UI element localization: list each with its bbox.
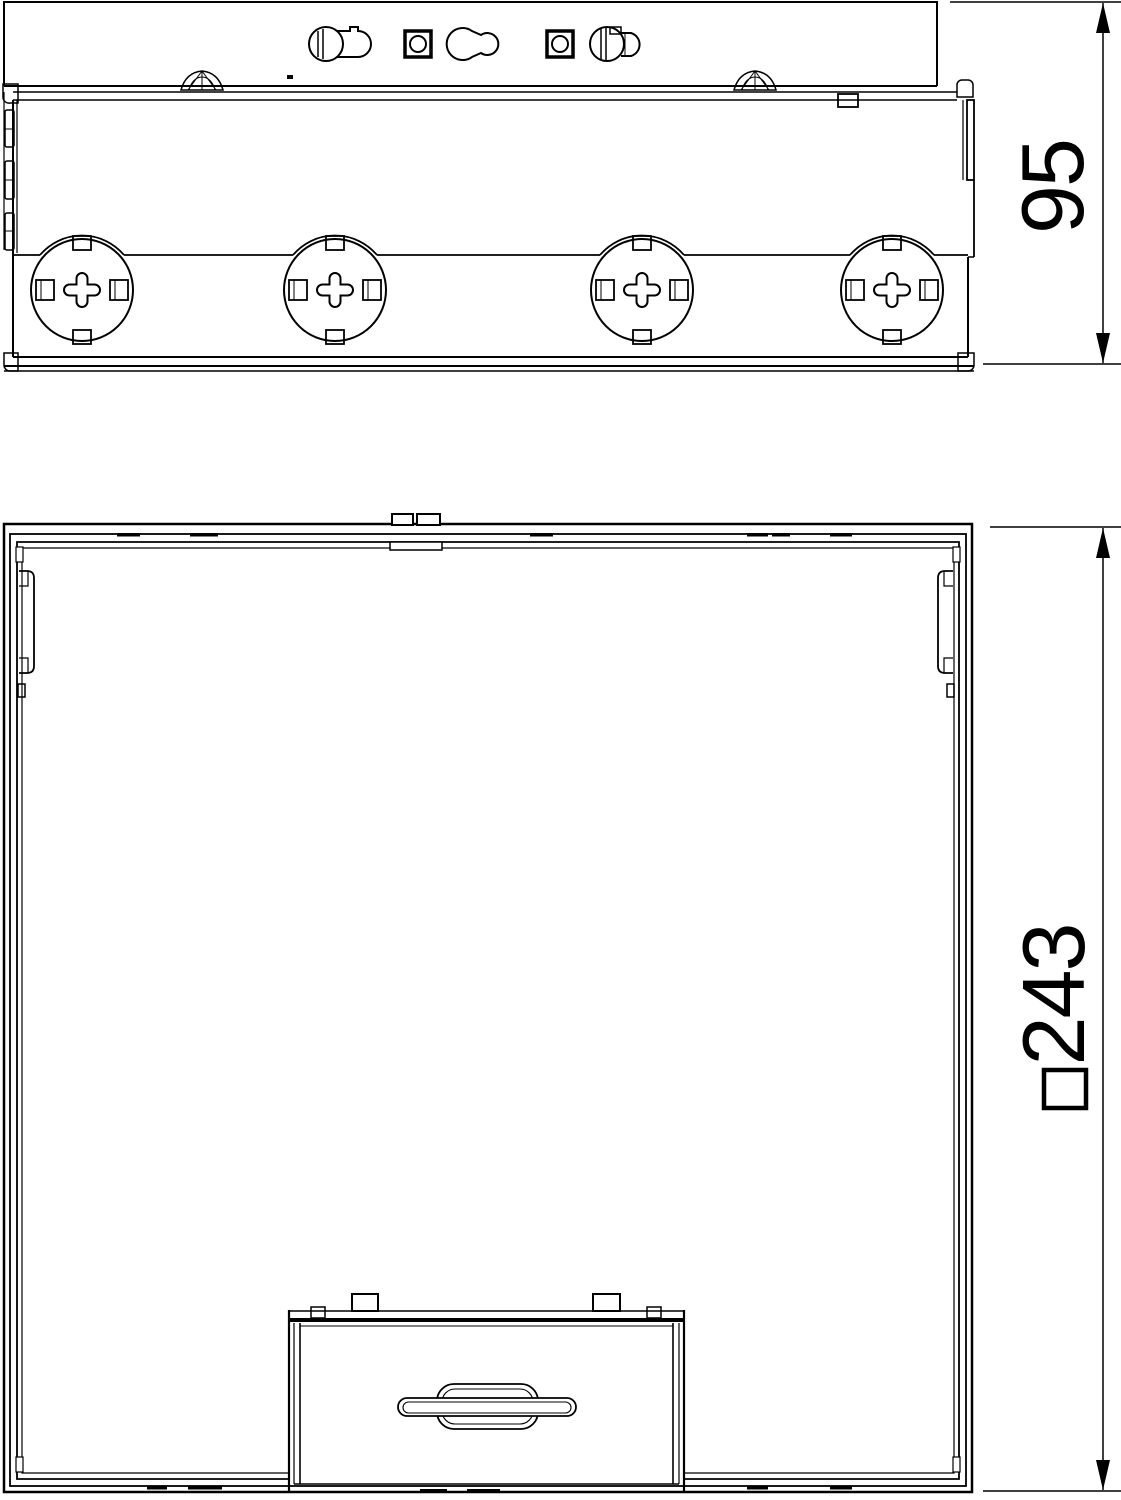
technical-drawing: 95 [0,0,1121,1500]
canvas-background [0,0,1121,1500]
top-slot [390,542,442,550]
box-tab [352,1294,378,1311]
mounting-box [288,1292,685,1491]
box-tab [593,1294,620,1311]
dimension-243-label: 243 [1004,925,1103,1066]
top-tab [417,514,440,525]
drawing-page: 95 [0,0,1121,1500]
plate-mark [287,75,293,79]
top-tab [392,514,413,525]
dimension-95-label: 95 [1003,140,1102,234]
